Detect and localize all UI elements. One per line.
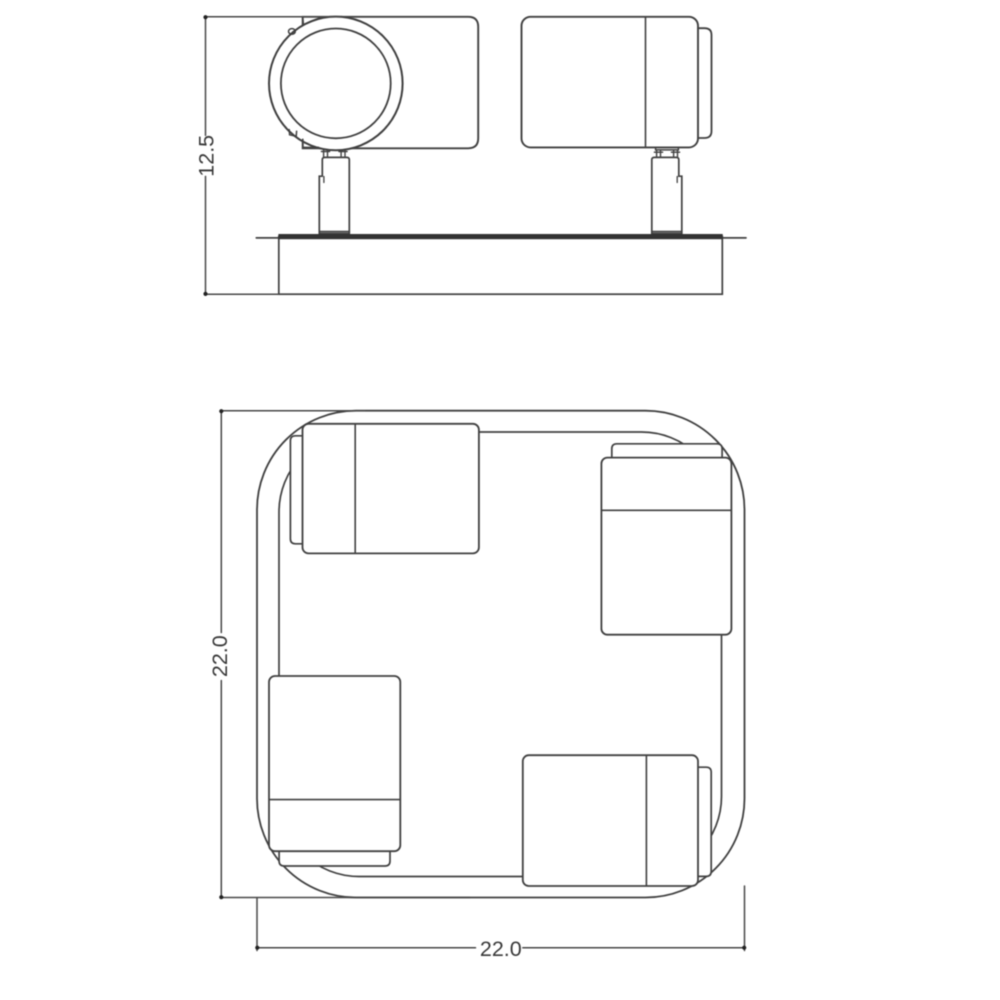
- svg-text:12.5: 12.5: [194, 135, 218, 177]
- svg-text:22.0: 22.0: [208, 635, 232, 677]
- svg-text:22.0: 22.0: [480, 937, 522, 961]
